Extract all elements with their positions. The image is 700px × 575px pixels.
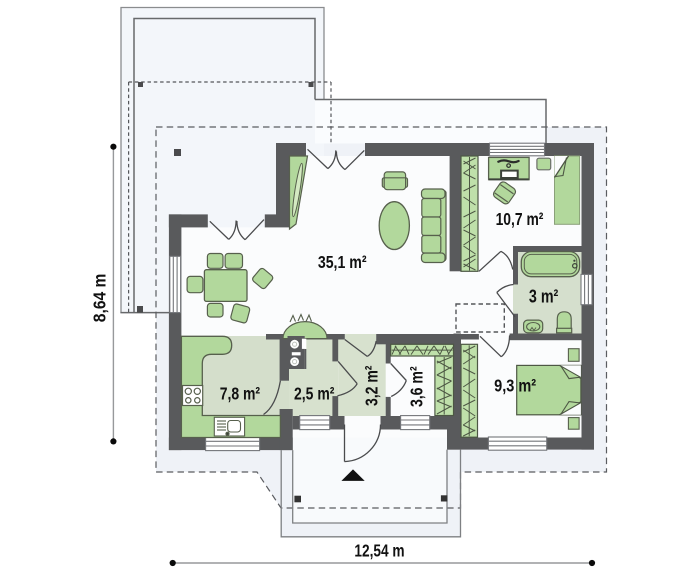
svg-text:35,1 m²: 35,1 m² (318, 252, 367, 272)
svg-text:9,3 m²: 9,3 m² (494, 376, 536, 396)
svg-text:2,5 m²: 2,5 m² (294, 384, 335, 404)
svg-text:7,8 m²: 7,8 m² (220, 384, 261, 404)
svg-text:12,54 m: 12,54 m (354, 540, 404, 560)
svg-text:8,64 m: 8,64 m (89, 274, 109, 323)
svg-text:10,7 m²: 10,7 m² (496, 209, 544, 229)
svg-text:3,2 m²: 3,2 m² (362, 365, 382, 406)
svg-text:3,6 m²: 3,6 m² (407, 366, 427, 407)
svg-text:3 m²: 3 m² (529, 286, 558, 307)
